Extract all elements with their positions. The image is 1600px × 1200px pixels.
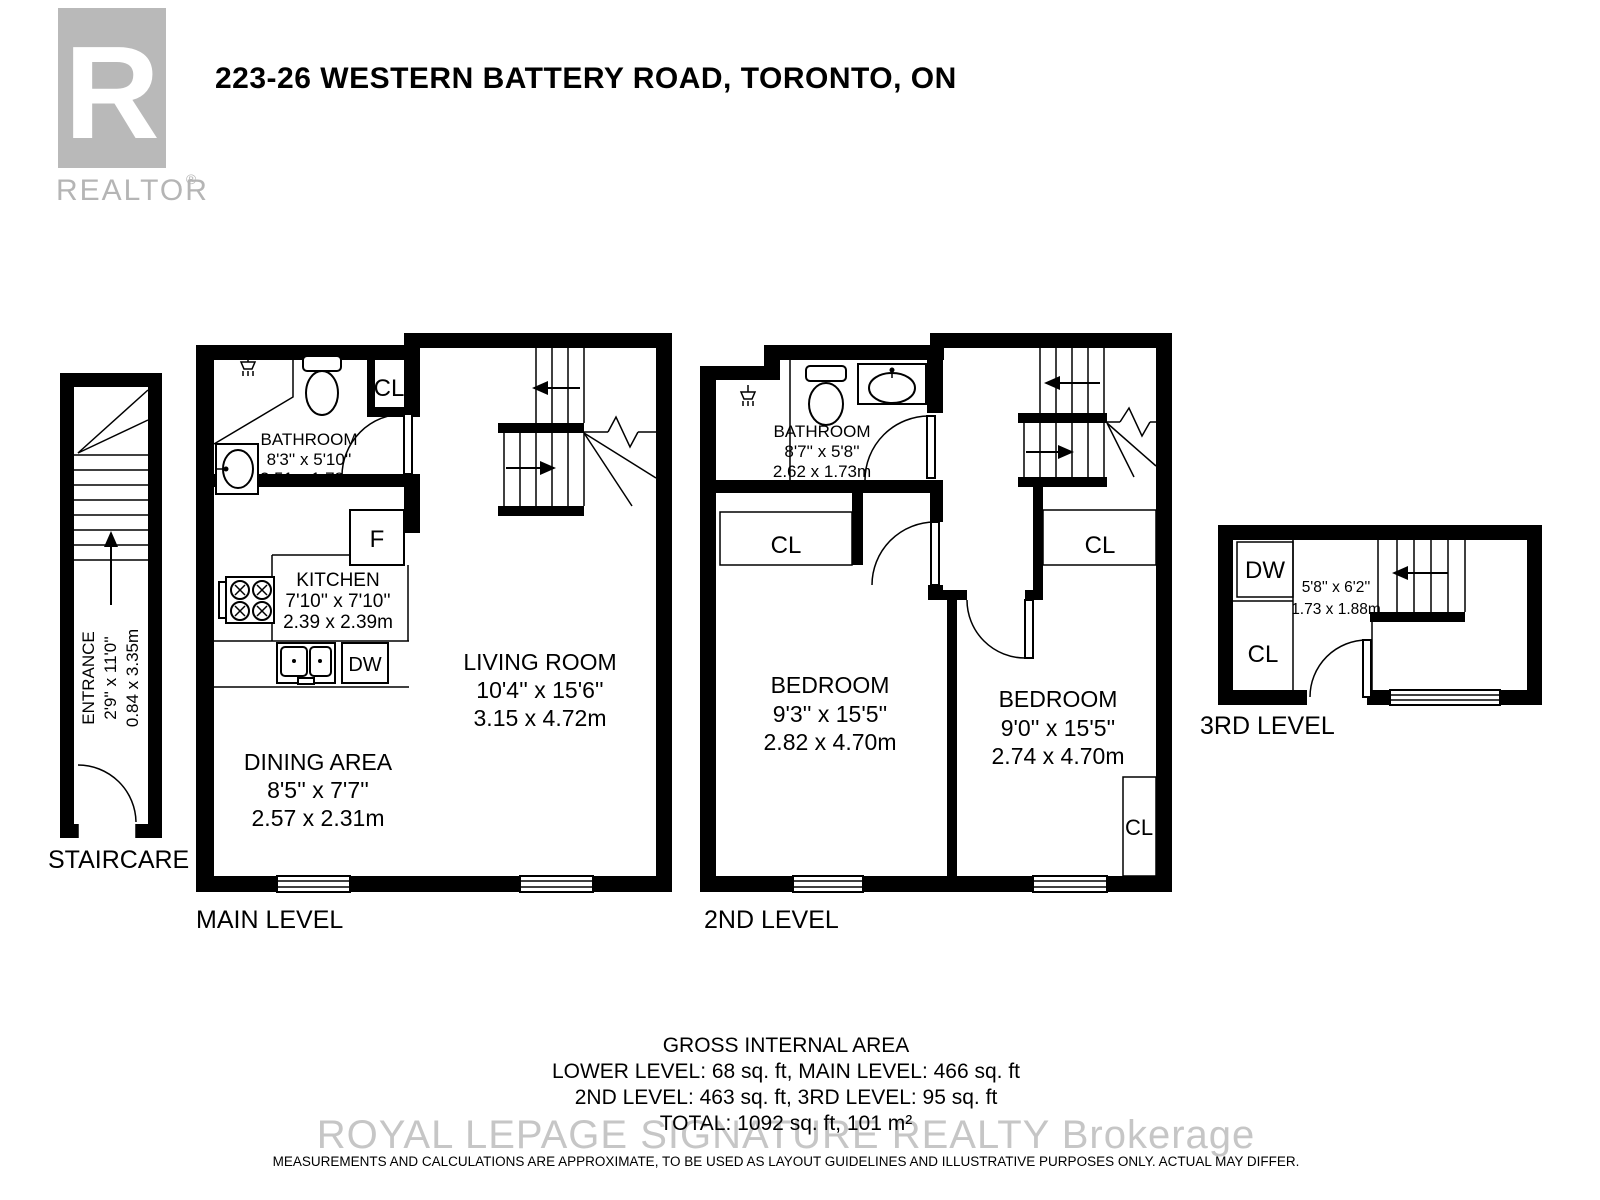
dining-area-metric: 2.57 x 2.31m bbox=[252, 805, 385, 831]
page-title: 223-26 WESTERN BATTERY ROAD, TORONTO, ON bbox=[215, 62, 957, 95]
bedroom-left-name: BEDROOM bbox=[771, 672, 890, 698]
kitchen-area: F bbox=[214, 510, 409, 687]
second-level-plan: BATHROOM 8'7'' x 5'8'' 2.62 x 1.73m CL C… bbox=[700, 333, 1172, 892]
gross-area-total: TOTAL: 1092 sq. ft, 101 m² bbox=[660, 1112, 913, 1135]
gross-area-line1: LOWER LEVEL: 68 sq. ft, MAIN LEVEL: 466 … bbox=[552, 1060, 1020, 1083]
third-level-door bbox=[1363, 640, 1371, 697]
stove-icon bbox=[219, 577, 274, 623]
window bbox=[1033, 876, 1107, 892]
realtor-logo-r: R bbox=[64, 19, 159, 166]
main-level-plan: CL BATHROOM 8'3'' x 5'10'' 2.51 x 1.78m … bbox=[196, 333, 672, 892]
bedroom-right-imperial: 9'0'' x 15'5'' bbox=[1001, 715, 1116, 741]
main-bathroom-imperial: 8'3'' x 5'10'' bbox=[267, 450, 352, 469]
third-dishwasher-label: DW bbox=[1245, 557, 1285, 584]
gross-area-title: GROSS INTERNAL AREA bbox=[663, 1034, 910, 1057]
third-level-plan: DW CL 5'8'' x 6'2'' 1.73 x 1.88m bbox=[1218, 525, 1542, 705]
bedroom-left-metric: 2.82 x 4.70m bbox=[764, 729, 897, 755]
registered-mark-icon: ® bbox=[186, 171, 197, 187]
bedroom-right-name: BEDROOM bbox=[999, 686, 1118, 712]
second-closet-left-label: CL bbox=[771, 532, 802, 559]
entrance-door-swing bbox=[78, 765, 136, 822]
staircase-winder bbox=[78, 390, 148, 453]
toilet-icon bbox=[806, 366, 846, 425]
entrance-room-label: ENTRANCE bbox=[79, 631, 98, 725]
bedroom-right-door-swing bbox=[967, 600, 1025, 658]
entrance-door-threshold bbox=[78, 824, 136, 838]
floorplan-page: R REALTOR ® 223-26 WESTERN BATTERY ROAD,… bbox=[0, 0, 1600, 1200]
kitchen-metric: 2.39 x 2.39m bbox=[283, 612, 393, 633]
second-level-label: 2ND LEVEL bbox=[704, 906, 839, 934]
living-room-imperial: 10'4'' x 15'6'' bbox=[476, 677, 603, 703]
main-level-label: MAIN LEVEL bbox=[196, 906, 343, 934]
third-level-stairs bbox=[1370, 540, 1465, 690]
third-door-threshold bbox=[1307, 690, 1367, 705]
living-room-name: LIVING ROOM bbox=[463, 649, 616, 675]
kitchen-imperial: 7'10'' x 7'10'' bbox=[285, 591, 390, 612]
main-bathroom-metric: 2.51 x 1.78m bbox=[260, 469, 358, 488]
kitchen-sink-icon bbox=[277, 643, 335, 684]
sink-icon bbox=[858, 364, 926, 404]
dining-area-name: DINING AREA bbox=[244, 749, 393, 775]
window bbox=[520, 876, 593, 892]
second-level-stairs bbox=[1018, 348, 1156, 487]
bathroom-door-swing bbox=[865, 416, 929, 480]
fridge-label: F bbox=[370, 526, 385, 553]
main-closet-label: CL bbox=[374, 375, 405, 402]
staircase-unit: ENTRANCE 2'9'' x 11'0'' 0.84 x 3.35m bbox=[60, 373, 162, 838]
third-level-door-swing bbox=[1310, 640, 1367, 697]
bedroom-right-door bbox=[1025, 600, 1033, 658]
sink-icon bbox=[216, 444, 258, 494]
second-closet-bedroom-label: CL bbox=[1125, 815, 1153, 840]
stair-up-arrow-icon bbox=[104, 531, 118, 605]
bedroom-left-door bbox=[931, 522, 939, 585]
floorplan-canvas: R REALTOR ® 223-26 WESTERN BATTERY ROAD,… bbox=[0, 0, 1600, 1200]
entrance-dim-imperial: 2'9'' x 11'0'' bbox=[101, 636, 120, 719]
shower-head-icon bbox=[741, 385, 755, 406]
bathroom-door bbox=[927, 416, 935, 478]
realtor-logo: R REALTOR ® bbox=[56, 8, 209, 207]
staircase-level-label: STAIRCARE bbox=[48, 846, 189, 874]
third-level-label: 3RD LEVEL bbox=[1200, 712, 1335, 740]
toilet-icon bbox=[303, 356, 341, 415]
window bbox=[277, 876, 350, 892]
window bbox=[1390, 690, 1500, 705]
bedroom-left-imperial: 9'3'' x 15'5'' bbox=[773, 701, 888, 727]
second-closet-right-label: CL bbox=[1085, 532, 1116, 559]
gross-area-line2: 2ND LEVEL: 463 sq. ft, 3RD LEVEL: 95 sq.… bbox=[575, 1086, 998, 1109]
third-dim-metric: 1.73 x 1.88m bbox=[1291, 601, 1381, 618]
dining-area-imperial: 8'5'' x 7'7'' bbox=[267, 777, 369, 803]
window bbox=[793, 876, 863, 892]
disclaimer-text: MEASUREMENTS AND CALCULATIONS ARE APPROX… bbox=[273, 1154, 1300, 1169]
main-bathroom-name: BATHROOM bbox=[261, 430, 358, 449]
bathroom-door bbox=[404, 414, 412, 474]
third-closet-label: CL bbox=[1248, 641, 1279, 668]
bedroom-right-metric: 2.74 x 4.70m bbox=[992, 743, 1125, 769]
living-room-metric: 3.15 x 4.72m bbox=[474, 705, 607, 731]
kitchen-name: KITCHEN bbox=[296, 570, 379, 591]
bedroom-left-door-swing bbox=[872, 522, 935, 585]
entrance-dim-metric: 0.84 x 3.35m bbox=[123, 629, 142, 727]
main-dishwasher-label: DW bbox=[348, 654, 381, 676]
third-dim-imperial: 5'8'' x 6'2'' bbox=[1302, 579, 1371, 596]
second-bathroom-imperial: 8'7'' x 5'8'' bbox=[784, 442, 859, 461]
main-level-stairs bbox=[498, 348, 656, 516]
second-bathroom-name: BATHROOM bbox=[774, 422, 871, 441]
second-bathroom-metric: 2.62 x 1.73m bbox=[773, 462, 871, 481]
